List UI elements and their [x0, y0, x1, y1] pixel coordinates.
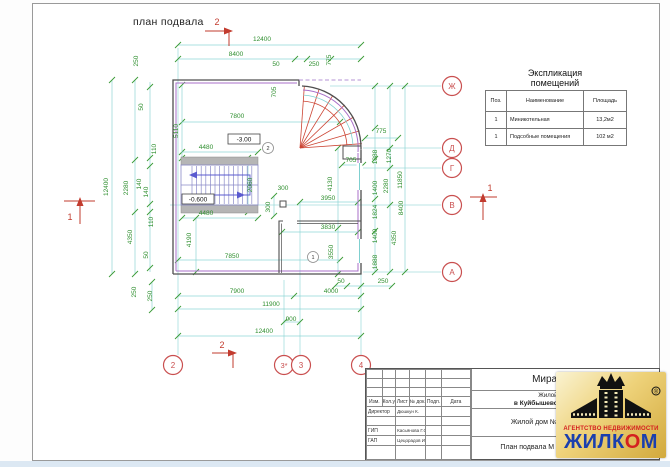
dimension-label: 1888	[372, 254, 379, 269]
dimension-label: 4130	[327, 176, 334, 191]
dimension-label: 705	[271, 86, 278, 97]
room-number: 1	[311, 255, 314, 261]
dimension-label: 7900	[230, 288, 245, 295]
tb-col-dok: № док.	[409, 397, 426, 407]
dimension-label: 250	[131, 286, 138, 297]
dimension-label: 250	[309, 61, 320, 68]
dimension-label: 4480	[199, 210, 214, 217]
dimension-label: 5110	[173, 124, 180, 138]
section-marker-1-right: 1	[470, 183, 497, 220]
room-number: 2	[266, 146, 269, 152]
dimension-label: 300	[278, 185, 289, 192]
dimension-label: 50	[138, 103, 145, 111]
dimension-label: 4480	[199, 144, 214, 151]
dimension-label: 1824	[372, 204, 379, 219]
dimension-label: 12400	[253, 36, 271, 43]
tb-role: ГАП	[367, 436, 396, 446]
dimension-label: 8400	[398, 200, 405, 215]
dimension-label: 7850	[225, 253, 240, 260]
dimension-label: 775	[376, 128, 387, 135]
drawing-sheet: 2 2 1 1 2 3* 3 4 Ж Д	[0, 0, 670, 467]
axis-bubbles: 2 3* 3 4 Ж Д Г В А	[164, 77, 462, 375]
stair-arrow-up	[189, 172, 197, 179]
explication-cell: Подсобные помещения	[507, 129, 584, 146]
dimension-label: 1400	[372, 228, 379, 243]
dimension-label: 110	[151, 143, 158, 154]
section-marker-1-left: 1	[64, 197, 95, 224]
axis-label: В	[449, 201, 454, 210]
tb-name: Дюшкун К.	[396, 407, 426, 417]
elevation-label: -0.600	[189, 197, 208, 204]
section-label: 1	[487, 183, 492, 193]
dimension-label: 11850	[397, 171, 404, 189]
logo-building-icon: ®	[557, 372, 665, 422]
explication-table: Экспликация помещений Поз. Наименование …	[485, 68, 625, 146]
plan-title: план подвала	[133, 16, 204, 28]
dimension-label: 1400	[372, 180, 379, 195]
dimension-label: 4350	[391, 230, 398, 245]
dimension-label: 7800	[230, 113, 245, 120]
col-header-area: Площадь	[584, 91, 627, 112]
elevation-label: -3.00	[237, 137, 252, 144]
section-marker-2-top: 2	[205, 17, 233, 46]
tb-col-izm: Изм.	[367, 397, 383, 407]
tb-col-koluch: Кол.уч	[382, 397, 396, 407]
logo-brand-text: ЖИЛКОМ	[556, 432, 666, 452]
zhilkom-logo: ® АГЕНТСТВО НЕДВИЖИМОСТИ ЖИЛКОМ	[556, 372, 666, 458]
col-header-pos: Поз.	[486, 91, 507, 112]
explication-title: Экспликация помещений	[485, 68, 625, 88]
dimension-label: 11900	[262, 301, 280, 308]
dimension-label: 2280	[383, 178, 390, 193]
explication-cell: Миникотельная	[507, 112, 584, 129]
axis-label: Ж	[448, 82, 456, 91]
stair-arrow-down	[237, 192, 245, 199]
explication-row: 1Миникотельная13,2м2	[486, 112, 627, 129]
dimension-label: 4190	[186, 232, 193, 247]
section-marker-2-bottom: 2	[212, 340, 237, 368]
explication-row: 1Подсобные помещения102 м2	[486, 129, 627, 146]
section-label: 2	[219, 340, 224, 350]
tb-role: Директор	[367, 407, 396, 417]
page-bottom-margin	[0, 461, 670, 467]
dimension-label: 3950	[321, 195, 336, 202]
title-block-grid: Изм. Кол.уч Лист № док. Подп. Дата Дирек…	[366, 369, 471, 460]
dimension-label: 50	[337, 278, 345, 285]
dimension-label: 2060	[247, 177, 254, 192]
dimension-label: 4000	[324, 288, 339, 295]
explication-cell: 102 м2	[584, 129, 627, 146]
dimension-label: 50	[143, 251, 150, 259]
dimension-label: 110	[148, 216, 155, 227]
dimension-label: 300	[265, 201, 272, 212]
section-label: 1	[67, 212, 72, 222]
dimension-label: 775	[326, 54, 333, 65]
col-header-name: Наименование	[507, 91, 584, 112]
winder-tread-line	[300, 86, 304, 148]
dimension-label: 250	[147, 290, 154, 301]
dimension-label: 3550	[328, 244, 335, 259]
axis-label: 3	[299, 361, 304, 370]
explication-cell: 1	[486, 112, 507, 129]
dimension-label: 250	[378, 278, 389, 285]
dimension-label: 1270	[386, 148, 393, 163]
dimension-label: 12400	[255, 328, 273, 335]
dimension-label: 4350	[127, 229, 134, 244]
tb-col-list: Лист	[396, 397, 410, 407]
axis-label: Д	[449, 144, 455, 153]
dimension-label: 140	[136, 178, 143, 189]
dimension-label: 3830	[321, 224, 336, 231]
tb-name: Цецорадов И.А.	[396, 436, 426, 446]
dimension-label: 8400	[229, 51, 244, 58]
tb-col-data: Дата	[441, 397, 470, 407]
dimension-label: 50	[272, 61, 280, 68]
tb-role: ГИП	[367, 426, 396, 436]
tb-name: Касьянова Г.С.	[396, 426, 426, 436]
section-label: 2	[214, 17, 219, 27]
axis-label: 3*	[280, 361, 287, 370]
explication-cell: 13,2м2	[584, 112, 627, 129]
axis-label: 2	[171, 361, 176, 370]
dimension-label: 140	[143, 186, 150, 197]
dimension-label: 705	[346, 157, 357, 164]
dimension-label: 12400	[103, 178, 110, 196]
axis-label: Г	[450, 164, 455, 173]
registered-mark: ®	[654, 389, 659, 396]
dimension-label: 1888	[372, 149, 379, 164]
axis-label: А	[449, 268, 455, 277]
dimension-label: 900	[286, 316, 297, 323]
tb-col-podp: Подп.	[426, 397, 442, 407]
dimension-label: 2280	[123, 180, 130, 195]
explication-cell: 1	[486, 129, 507, 146]
axis-label: 4	[359, 361, 364, 370]
column	[280, 201, 286, 207]
dimension-label: 250	[133, 55, 140, 66]
